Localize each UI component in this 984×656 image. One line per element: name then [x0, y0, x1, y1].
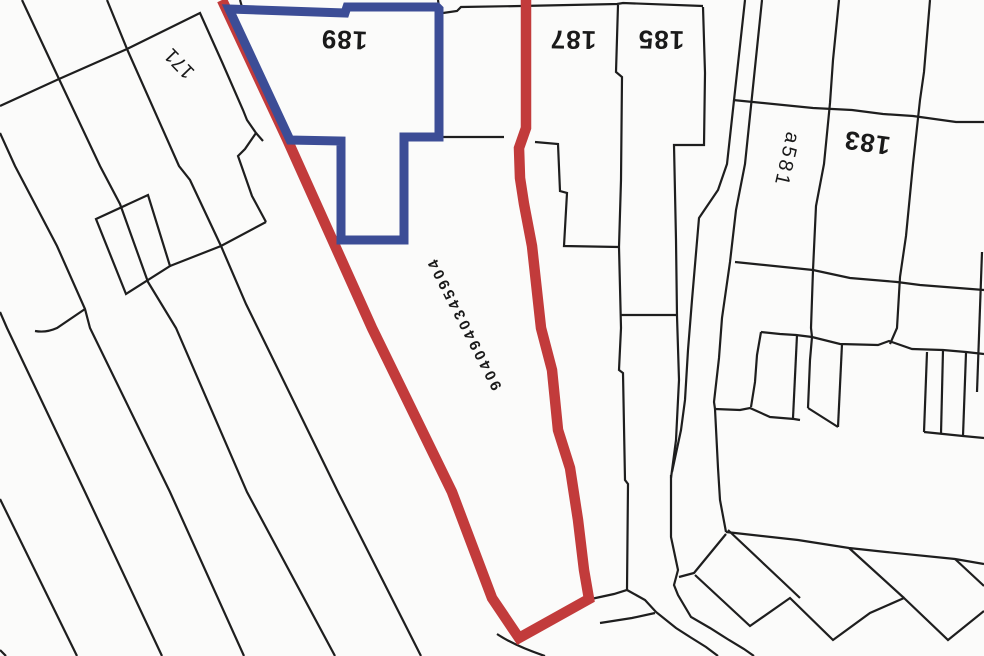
svg-text:185: 185 [638, 24, 685, 55]
svg-text:189: 189 [320, 24, 367, 56]
svg-text:183: 183 [842, 125, 892, 161]
svg-text:187: 187 [550, 24, 597, 55]
